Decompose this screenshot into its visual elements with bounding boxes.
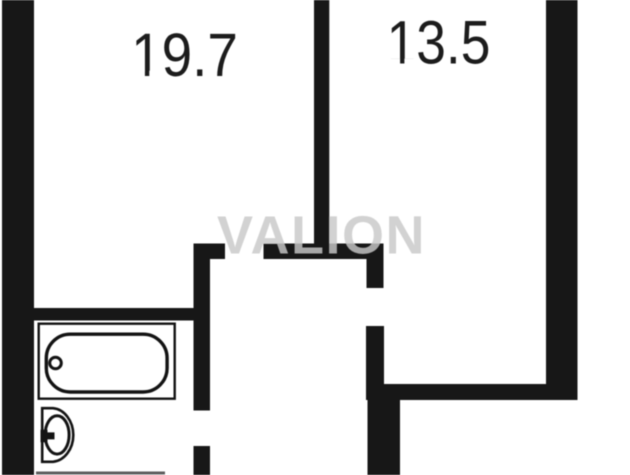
svg-text:VALION: VALION [217, 206, 426, 266]
svg-text:13.5: 13.5 [387, 9, 491, 77]
svg-text:19.7: 19.7 [131, 21, 238, 89]
